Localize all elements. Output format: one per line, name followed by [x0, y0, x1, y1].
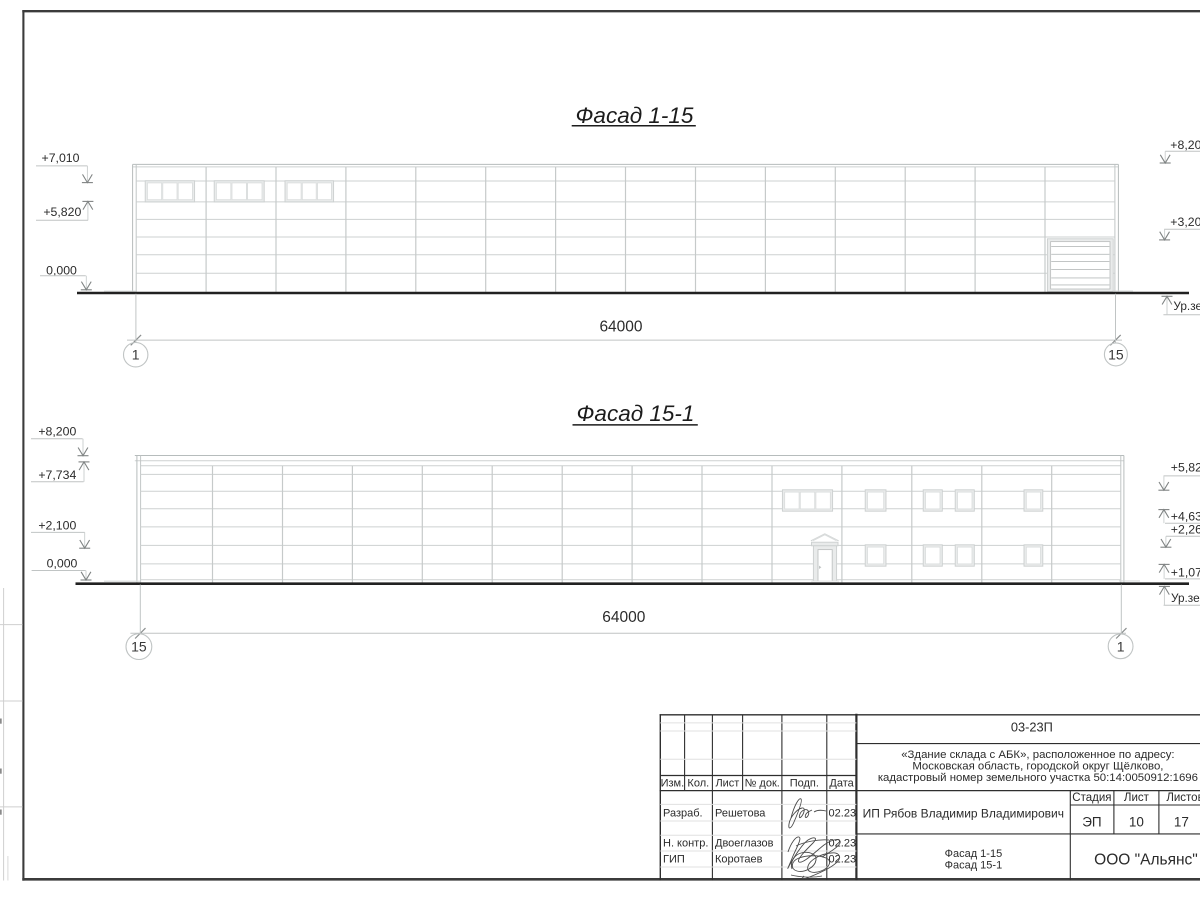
svg-text:0,000: 0,000 — [46, 263, 77, 277]
svg-text:1: 1 — [132, 347, 140, 363]
svg-text:+8,200: +8,200 — [38, 424, 76, 438]
svg-text:10: 10 — [1129, 814, 1144, 829]
svg-text:+2,100: +2,100 — [38, 518, 76, 532]
svg-text:Ур.земли: Ур.земли — [1171, 591, 1200, 605]
svg-text:+7,734: +7,734 — [38, 468, 76, 482]
svg-text:Коротаев: Коротаев — [715, 854, 763, 866]
svg-text:ИП Рябов Владимир Владимирович: ИП Рябов Владимир Владимирович — [863, 806, 1064, 820]
svg-text:0,000: 0,000 — [47, 557, 78, 571]
svg-text:02.23: 02.23 — [829, 854, 857, 866]
svg-text:ЭП: ЭП — [1082, 814, 1101, 829]
svg-text:Решетова: Решетова — [715, 807, 766, 819]
svg-text:ГИП: ГИП — [663, 854, 685, 866]
svg-text:Фасад 15-1: Фасад 15-1 — [577, 401, 695, 426]
svg-text:ООО "Альянс": ООО "Альянс" — [1094, 851, 1198, 868]
svg-text:02.23: 02.23 — [829, 807, 857, 819]
svg-text:+5,820: +5,820 — [43, 205, 81, 219]
svg-text:15: 15 — [1108, 346, 1124, 362]
svg-text:Стадия: Стадия — [1072, 792, 1111, 804]
svg-text:Кол.: Кол. — [687, 778, 709, 790]
svg-text:15: 15 — [131, 639, 147, 655]
svg-text:Лист: Лист — [715, 778, 739, 790]
svg-text:Н. контр.: Н. контр. — [663, 838, 708, 850]
svg-text:Фасад 1-15: Фасад 1-15 — [945, 848, 1003, 860]
svg-text:№ док.: № док. — [745, 778, 780, 790]
svg-text:Двоеглазов: Двоеглазов — [715, 838, 774, 850]
svg-text:Фасад 15-1: Фасад 15-1 — [945, 860, 1003, 872]
svg-text:03-23П: 03-23П — [1011, 720, 1053, 735]
svg-text:+7,010: +7,010 — [42, 151, 80, 165]
svg-text:+1,070: +1,070 — [1171, 565, 1200, 579]
svg-text:Московская область, городской: Московская область, городской округ Щёлк… — [912, 761, 1163, 773]
svg-text:+3,200: +3,200 — [1170, 215, 1200, 229]
svg-text:1: 1 — [1117, 638, 1125, 654]
svg-text:+5,820: +5,820 — [1171, 461, 1200, 475]
svg-text:кадастровый номер земельного у: кадастровый номер земельного участка 50:… — [878, 772, 1198, 784]
svg-text:Подп.: Подп. — [790, 778, 819, 790]
svg-text:17: 17 — [1174, 814, 1189, 829]
svg-text:64000: 64000 — [602, 609, 645, 626]
svg-text:Дата: Дата — [829, 778, 854, 790]
svg-text:64000: 64000 — [599, 318, 642, 335]
svg-text:+4,630: +4,630 — [1171, 510, 1200, 524]
svg-text:«Здание склада с АБК», располо: «Здание склада с АБК», расположенное по … — [901, 749, 1174, 761]
svg-text:+2,260: +2,260 — [1171, 523, 1200, 537]
svg-text:Разраб.: Разраб. — [663, 807, 703, 819]
svg-text:Изм.: Изм. — [661, 778, 685, 790]
svg-text:Листов: Листов — [1166, 792, 1200, 804]
svg-text:Фасад 1-15: Фасад 1-15 — [576, 103, 694, 128]
svg-text:+8,200: +8,200 — [1170, 138, 1200, 152]
svg-text:02.23: 02.23 — [829, 838, 857, 850]
svg-text:Ур.земли: Ур.земли — [1173, 299, 1200, 313]
svg-text:Лист: Лист — [1124, 792, 1150, 804]
